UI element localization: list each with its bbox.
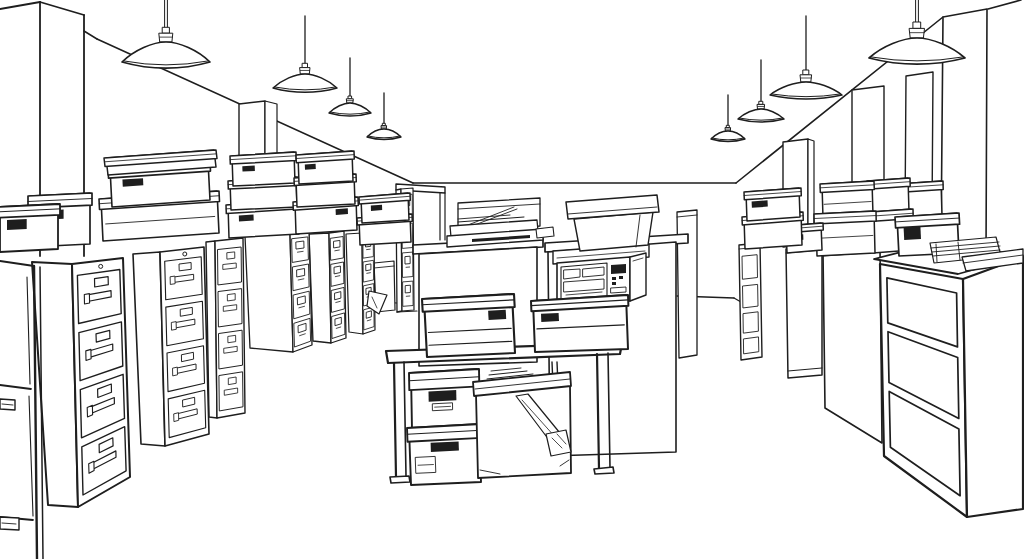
archive-box — [744, 188, 801, 221]
box-on-table — [531, 295, 628, 352]
box-on-table — [422, 294, 515, 357]
archive-box — [230, 152, 296, 186]
damaged-box — [473, 368, 571, 478]
under-table-box — [407, 424, 482, 485]
archive-box — [296, 151, 354, 184]
filing-cabinet — [133, 247, 209, 446]
filing-cabinet — [32, 258, 130, 507]
filing-cabinet — [309, 231, 346, 343]
filing-cabinet — [206, 238, 245, 418]
narrow-shelf-unit — [739, 243, 762, 360]
under-table-box — [409, 369, 479, 430]
line-art-scene — [0, 0, 1024, 559]
archive-box — [359, 193, 410, 223]
archive-box — [0, 204, 60, 252]
plastic-tote — [566, 195, 659, 251]
filing-cabinet — [245, 231, 312, 352]
filing-cabinet — [346, 232, 375, 334]
office-storage-room-illustration — [0, 0, 1024, 559]
archive-box — [814, 211, 876, 256]
